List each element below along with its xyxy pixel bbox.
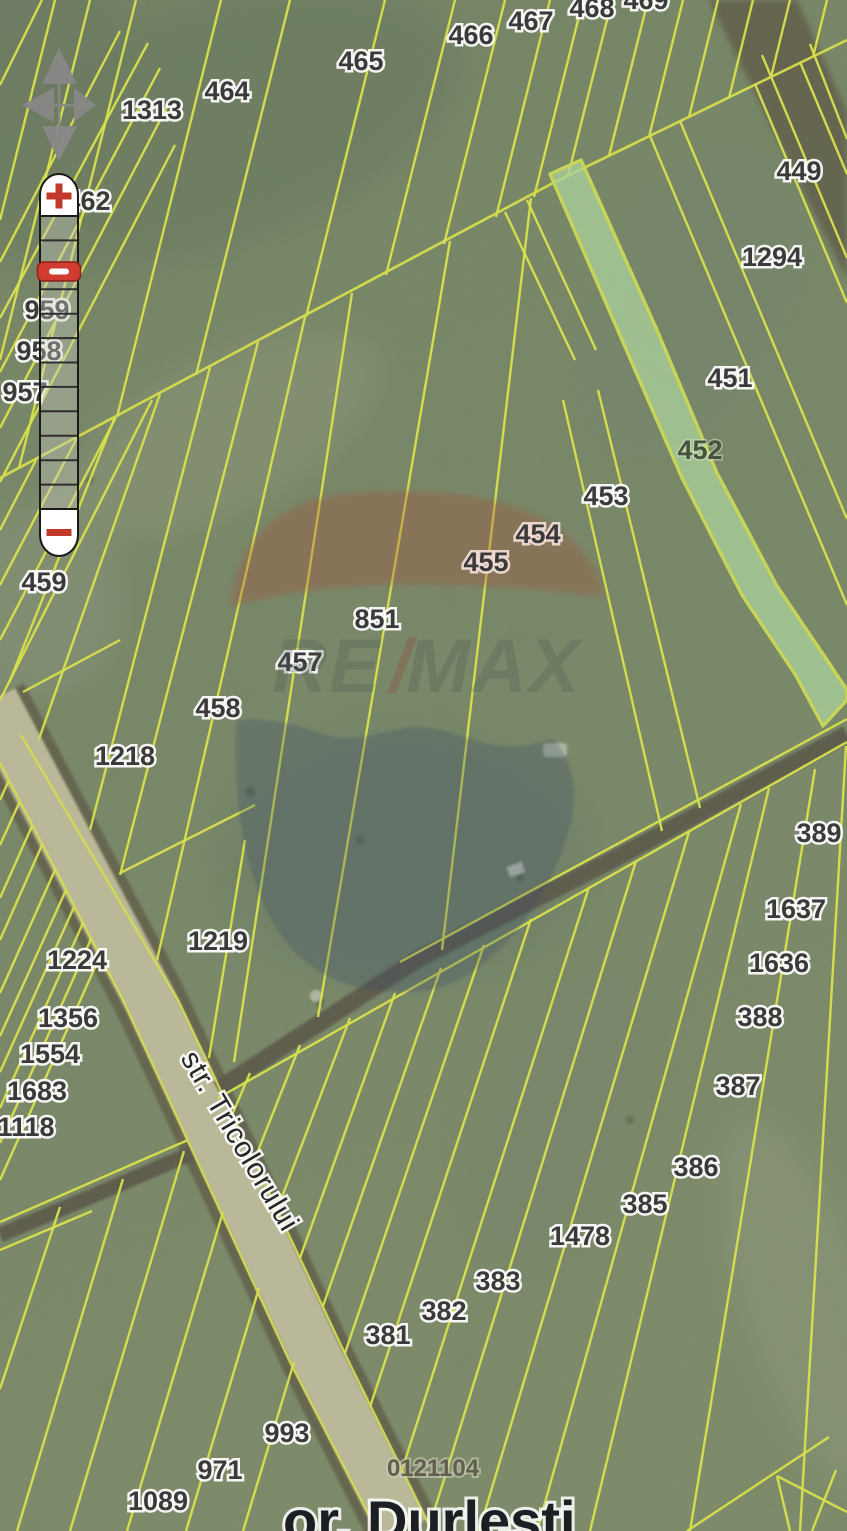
- svg-text:1118: 1118: [0, 1112, 55, 1142]
- svg-text:449: 449: [776, 156, 821, 186]
- svg-text:RE: RE: [272, 624, 382, 709]
- svg-text:455: 455: [463, 547, 508, 577]
- svg-text:1219: 1219: [188, 926, 248, 956]
- svg-text:1356: 1356: [38, 1003, 98, 1033]
- svg-text:or. Durlesti: or. Durlesti: [283, 1489, 576, 1531]
- svg-text:993: 993: [264, 1418, 309, 1448]
- svg-text:452: 452: [677, 435, 722, 465]
- svg-text:385: 385: [622, 1189, 667, 1219]
- svg-text:389: 389: [796, 818, 841, 848]
- svg-text:468: 468: [569, 0, 614, 23]
- svg-text:1637: 1637: [766, 894, 826, 924]
- svg-text:381: 381: [365, 1320, 410, 1350]
- svg-text:1313: 1313: [122, 95, 182, 125]
- svg-text:1089: 1089: [128, 1486, 188, 1516]
- svg-text:454: 454: [515, 519, 560, 549]
- svg-text:0121104: 0121104: [387, 1455, 480, 1482]
- svg-text:387: 387: [715, 1071, 760, 1101]
- svg-text:MAX: MAX: [407, 624, 584, 709]
- svg-text:388: 388: [737, 1002, 782, 1032]
- svg-text:1224: 1224: [47, 945, 107, 975]
- svg-text:386: 386: [673, 1152, 718, 1182]
- svg-text:383: 383: [475, 1266, 520, 1296]
- svg-text:971: 971: [197, 1455, 242, 1485]
- svg-text:382: 382: [421, 1296, 466, 1326]
- svg-text:1683: 1683: [7, 1076, 67, 1106]
- svg-text:1636: 1636: [749, 948, 809, 978]
- svg-text:459: 459: [21, 567, 66, 597]
- svg-text:451: 451: [707, 363, 752, 393]
- svg-text:466: 466: [448, 20, 493, 50]
- svg-text:458: 458: [195, 693, 240, 723]
- svg-text:1478: 1478: [550, 1221, 610, 1251]
- svg-text:469: 469: [623, 0, 668, 15]
- svg-text:465: 465: [338, 46, 383, 76]
- svg-text:464: 464: [204, 76, 249, 106]
- svg-text:1554: 1554: [20, 1039, 80, 1069]
- svg-text:1218: 1218: [95, 741, 155, 771]
- svg-text:467: 467: [508, 6, 553, 36]
- svg-text:1294: 1294: [742, 242, 802, 272]
- svg-text:453: 453: [583, 481, 628, 511]
